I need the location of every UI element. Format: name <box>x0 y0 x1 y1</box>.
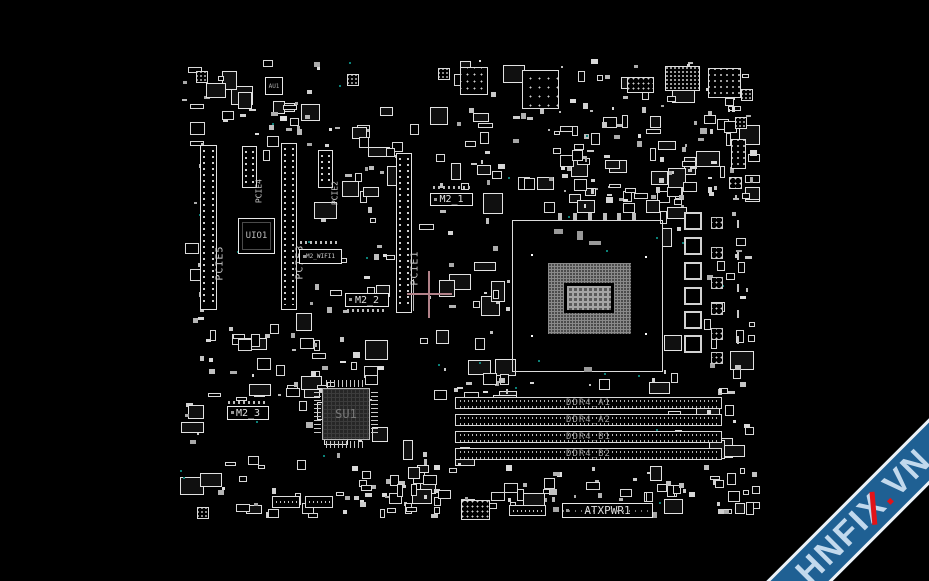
pad-array-component[interactable] <box>460 67 488 95</box>
component-outline <box>622 115 628 128</box>
crystal-component[interactable] <box>196 71 208 83</box>
slot-pcie3[interactable]: PCIE3 <box>281 143 297 310</box>
component-outline <box>612 107 614 110</box>
component-outline <box>724 510 729 514</box>
component-outline <box>646 129 661 134</box>
component-outline <box>190 122 205 135</box>
pad-array-component[interactable] <box>729 177 742 189</box>
vrm-choke[interactable] <box>684 262 702 280</box>
cpu-corner-mark <box>645 256 647 258</box>
component-outline <box>434 465 440 470</box>
slot-pcie4[interactable]: PCIE4 <box>242 146 257 188</box>
component-outline <box>268 509 279 518</box>
component-outline <box>397 484 403 497</box>
cpu-edge-pin <box>588 213 592 220</box>
component-outline <box>498 164 505 169</box>
component-outline <box>471 163 477 165</box>
component-outline <box>208 393 221 397</box>
component-outline <box>251 334 260 347</box>
slot-pcie2-label: PCIE2 <box>330 181 339 205</box>
component-outline <box>487 180 490 185</box>
component-outline <box>583 103 588 109</box>
vrm-mosfet[interactable] <box>711 303 723 315</box>
component-outline <box>634 193 648 199</box>
component-outline <box>548 129 550 131</box>
via-highlight-dot <box>515 387 517 389</box>
component-outline <box>506 465 512 471</box>
component-outline <box>434 390 447 400</box>
component-outline <box>738 262 745 273</box>
component-outline <box>745 427 754 435</box>
component-outline <box>483 373 497 385</box>
component-outline <box>617 124 622 127</box>
component-outline <box>403 440 413 460</box>
component-outline <box>194 202 197 204</box>
component-outline <box>562 174 568 178</box>
component-outline <box>369 166 374 170</box>
component-outline <box>182 99 187 101</box>
component-outline <box>183 81 187 84</box>
component-outline <box>354 496 359 500</box>
component-outline <box>623 96 628 99</box>
chip-au1[interactable]: AU1 <box>265 77 283 95</box>
component-outline <box>619 498 623 501</box>
component-outline <box>188 405 204 419</box>
pad-array-component[interactable] <box>708 68 741 98</box>
component-outline <box>327 307 332 313</box>
component-outline <box>544 202 555 213</box>
vrm-mosfet[interactable] <box>711 352 723 364</box>
via-highlight-dot <box>438 364 440 366</box>
component-outline <box>365 167 368 171</box>
slot-ddr4-a2[interactable]: DDR4_A2 <box>455 414 722 426</box>
component-outline <box>223 120 228 122</box>
vrm-mosfet[interactable] <box>711 217 723 229</box>
pin-header[interactable] <box>305 496 333 508</box>
component-outline <box>683 489 686 493</box>
crystal-component[interactable] <box>347 74 359 86</box>
component-outline <box>688 169 692 172</box>
component-outline <box>209 369 215 374</box>
via-highlight-dot <box>323 455 325 457</box>
component-outline <box>664 499 683 514</box>
component-outline <box>683 182 697 192</box>
component-outline <box>752 486 760 494</box>
component-outline <box>719 388 721 393</box>
component-outline <box>506 307 510 311</box>
component-outline <box>431 514 438 518</box>
component-outline <box>744 424 750 428</box>
component-outline <box>238 339 252 351</box>
cpu-socket[interactable] <box>512 220 663 372</box>
component-outline <box>726 273 735 280</box>
component-outline <box>561 167 565 170</box>
component-outline <box>646 492 653 502</box>
component-outline <box>483 193 503 214</box>
component-outline <box>660 157 664 162</box>
component-outline <box>419 224 434 230</box>
component-outline <box>486 218 489 224</box>
component-outline <box>527 117 533 120</box>
component-outline <box>361 485 372 491</box>
cpu-corner-mark <box>531 335 533 337</box>
component-outline <box>301 104 320 121</box>
component-outline <box>493 246 498 251</box>
cpu-inner-part <box>554 229 563 234</box>
slot-ddr4-a2-label: DDR4_A2 <box>566 415 611 425</box>
component-outline <box>507 280 510 283</box>
component-outline <box>549 177 553 181</box>
cpu-corner-mark <box>531 254 533 256</box>
component-outline <box>364 276 370 279</box>
component-outline <box>280 116 287 121</box>
component-outline <box>623 203 635 213</box>
component-outline <box>377 245 382 248</box>
component-outline <box>321 219 326 222</box>
component-outline <box>370 218 376 223</box>
vrm-choke[interactable] <box>684 335 702 353</box>
chip-uio1[interactable]: UIO1 <box>238 218 275 254</box>
component-outline <box>410 124 419 135</box>
component-outline <box>449 468 457 473</box>
component-outline <box>553 148 561 154</box>
component-outline <box>577 200 595 213</box>
component-outline <box>387 508 396 513</box>
component-outline <box>723 445 745 457</box>
component-outline <box>218 76 224 81</box>
chip-su1[interactable]: SU1 <box>322 388 370 440</box>
component-outline <box>465 141 476 147</box>
vrm-mosfet[interactable] <box>711 247 723 259</box>
component-outline <box>363 187 379 197</box>
component-outline <box>572 126 578 136</box>
su1-pins-right <box>371 392 378 436</box>
component-outline <box>718 509 724 514</box>
component-outline <box>584 204 586 208</box>
slot-pcie5[interactable]: PCIE5 <box>200 145 217 310</box>
component-outline <box>606 197 613 203</box>
connector-m2-2-label: M2_2 <box>355 295 379 306</box>
component-outline <box>240 114 246 117</box>
crystal-component[interactable] <box>741 89 753 101</box>
component-outline <box>607 194 612 196</box>
component-outline <box>230 371 237 374</box>
component-outline <box>383 254 387 257</box>
component-outline <box>492 171 502 179</box>
component-outline <box>252 374 254 377</box>
component-outline <box>181 422 204 433</box>
pad-row <box>433 186 471 189</box>
component-outline <box>294 382 298 387</box>
component-outline <box>730 351 754 370</box>
component-outline <box>193 318 198 323</box>
vrm-choke[interactable] <box>684 287 702 305</box>
pad-array-component[interactable] <box>627 77 654 93</box>
component-outline <box>587 150 594 152</box>
component-outline <box>360 502 366 507</box>
component-outline <box>297 129 302 135</box>
component-outline <box>620 489 632 497</box>
component-outline <box>559 111 561 113</box>
pad-array-component[interactable] <box>731 139 746 169</box>
component-outline <box>667 96 676 102</box>
boardview-canvas[interactable]: PCIE5 PCIE4 PCIE3 PCIE2 PCIE1 UIO1 AU1 S… <box>0 0 929 581</box>
component-outline <box>597 75 603 81</box>
component-outline <box>740 382 746 387</box>
component-outline <box>642 92 649 100</box>
component-outline <box>589 384 591 386</box>
component-outline <box>451 163 461 180</box>
component-outline <box>727 473 736 485</box>
connector-m2-3[interactable]: M2_3 <box>227 406 269 420</box>
component-outline <box>650 148 656 161</box>
pad-row <box>347 309 387 312</box>
component-outline <box>499 378 505 383</box>
component-outline <box>642 107 646 113</box>
component-outline <box>457 122 461 126</box>
component-outline <box>458 463 461 466</box>
component-outline <box>609 184 621 188</box>
component-outline <box>682 161 696 167</box>
via-highlight-dot <box>659 502 661 504</box>
component-outline <box>483 391 488 393</box>
component-outline <box>728 391 735 394</box>
component-outline <box>434 507 440 514</box>
component-outline <box>550 489 557 495</box>
component-outline <box>659 178 664 183</box>
via-highlight-dot <box>638 375 640 377</box>
component-outline <box>657 484 667 492</box>
slot-ddr4-b2[interactable]: DDR4_B2 <box>455 448 722 460</box>
vrm-choke[interactable] <box>684 212 702 230</box>
component-outline <box>249 109 256 111</box>
vrm-choke[interactable] <box>684 311 702 329</box>
component-outline <box>271 112 278 116</box>
component-outline <box>721 388 728 394</box>
component-outline <box>679 483 684 488</box>
component-outline <box>254 503 258 506</box>
via-highlight-dot <box>568 216 570 218</box>
component-outline <box>752 472 757 477</box>
component-outline <box>590 110 593 112</box>
slot-ddr4-a1[interactable]: DDR4_A1 <box>455 397 722 409</box>
component-outline <box>353 352 360 358</box>
component-outline <box>342 181 359 197</box>
slot-pcie2[interactable]: PCIE2 <box>318 150 333 188</box>
crystal-component[interactable] <box>197 507 209 519</box>
component-outline <box>380 107 393 116</box>
su1-pins-left <box>314 392 321 436</box>
component-outline <box>481 160 483 164</box>
component-outline <box>300 338 314 349</box>
connector-m2-1[interactable]: M2_1 <box>430 193 473 206</box>
component-outline <box>278 394 281 396</box>
component-outline <box>340 337 344 342</box>
component-outline <box>198 317 204 320</box>
slot-ddr4-a1-label: DDR4_A1 <box>566 398 611 408</box>
component-outline <box>674 199 682 205</box>
component-outline <box>708 187 712 193</box>
component-outline <box>637 141 642 147</box>
component-outline <box>740 468 745 474</box>
component-outline <box>493 290 499 299</box>
component-outline <box>725 405 734 416</box>
slot-pcie5-label: PCIE5 <box>214 245 225 280</box>
component-outline <box>530 382 534 384</box>
su1-pins-top <box>326 380 366 387</box>
component-outline <box>449 305 456 308</box>
component-outline <box>249 384 271 396</box>
component-outline <box>696 151 720 167</box>
component-outline <box>385 496 389 498</box>
component-outline <box>312 353 326 359</box>
vrm-mosfet[interactable] <box>711 277 723 289</box>
component-outline <box>720 166 725 178</box>
component-outline <box>185 243 199 254</box>
slot-pcie1-label: PCIE1 <box>410 251 421 286</box>
component-outline <box>736 238 746 246</box>
component-outline <box>263 60 273 67</box>
component-outline <box>340 361 346 363</box>
pad-mark <box>737 336 739 344</box>
via-highlight-dot <box>508 177 510 179</box>
via-highlight-dot <box>256 421 258 423</box>
component-outline <box>352 466 358 471</box>
component-outline <box>286 388 300 397</box>
component-outline <box>732 212 736 216</box>
component-outline <box>218 490 224 495</box>
slot-pcie1[interactable]: PCIE1 <box>396 153 412 313</box>
component-outline <box>210 330 216 341</box>
component-outline <box>714 186 717 190</box>
pin-header[interactable] <box>509 505 546 516</box>
component-outline <box>307 143 312 146</box>
component-outline <box>292 349 296 351</box>
component-outline <box>336 492 344 496</box>
pad-row <box>300 241 338 244</box>
component-outline <box>638 134 641 138</box>
via-highlight-dot <box>272 123 274 125</box>
component-outline <box>239 476 247 482</box>
component-outline <box>272 488 276 494</box>
component-outline <box>408 467 420 479</box>
component-outline <box>436 330 449 344</box>
component-outline <box>602 122 607 128</box>
component-outline <box>662 228 672 247</box>
component-outline <box>406 507 417 512</box>
component-outline <box>544 478 555 489</box>
component-outline <box>315 284 319 290</box>
component-outline <box>480 132 489 144</box>
component-outline <box>625 188 636 193</box>
component-outline <box>290 118 299 126</box>
component-outline <box>604 155 610 158</box>
component-outline <box>732 107 735 112</box>
component-outline <box>733 420 736 423</box>
component-outline <box>190 440 196 444</box>
component-outline <box>473 301 480 308</box>
connector-m2-wifi1[interactable]: M2_WIFI1 <box>299 249 342 264</box>
component-outline <box>479 60 481 62</box>
component-outline <box>365 493 372 497</box>
component-outline <box>200 473 222 487</box>
component-outline <box>669 171 672 175</box>
component-outline <box>564 190 566 192</box>
component-outline <box>423 475 437 485</box>
slot-ddr4-b1-label: DDR4_B1 <box>566 432 611 442</box>
component-outline <box>359 137 369 148</box>
pad-array-component[interactable] <box>665 66 700 91</box>
component-outline <box>745 256 752 259</box>
component-outline <box>329 128 332 131</box>
vrm-mosfet[interactable] <box>711 328 723 340</box>
crystal-component[interactable] <box>735 117 747 129</box>
component-outline <box>484 292 487 294</box>
connector-m2-2[interactable]: M2_2 <box>345 293 389 307</box>
component-outline <box>704 115 716 124</box>
cpu-edge-pin <box>573 213 577 220</box>
component-outline <box>222 111 234 120</box>
component-outline <box>380 171 384 174</box>
pad-array-component[interactable] <box>461 500 490 520</box>
component-outline <box>506 389 508 394</box>
component-outline <box>540 109 544 114</box>
component-outline <box>473 113 489 122</box>
component-outline <box>708 111 712 115</box>
component-outline <box>335 127 340 129</box>
component-outline <box>671 373 678 383</box>
component-outline <box>325 144 329 147</box>
component-outline <box>457 387 463 389</box>
pin-header[interactable] <box>272 496 300 508</box>
component-outline <box>229 327 233 331</box>
component-outline <box>717 261 725 271</box>
component-outline <box>430 107 448 125</box>
component-outline <box>436 154 445 162</box>
connector-atxpwr1[interactable]: ATXPWR1 <box>562 503 653 518</box>
component-outline <box>307 90 312 94</box>
component-outline <box>740 296 746 299</box>
component-outline <box>475 338 485 350</box>
component-outline <box>372 485 376 489</box>
component-outline <box>725 98 734 106</box>
vrm-choke[interactable] <box>684 237 702 255</box>
component-outline <box>524 178 535 190</box>
component-outline <box>742 193 750 199</box>
component-outline <box>649 382 670 394</box>
chip-au1-label: AU1 <box>269 83 280 90</box>
component-outline <box>685 144 687 147</box>
component-outline <box>386 255 395 260</box>
component-outline <box>746 502 754 515</box>
cpu-inner-part <box>577 231 583 240</box>
via-highlight-dot <box>339 85 341 87</box>
crystal-component[interactable] <box>438 68 450 80</box>
component-outline <box>345 496 350 500</box>
pad-array-component[interactable] <box>522 70 559 109</box>
slot-ddr4-b1[interactable]: DDR4_B1 <box>455 431 722 443</box>
component-outline <box>345 174 352 177</box>
component-outline <box>185 414 189 417</box>
component-outline <box>449 263 454 267</box>
component-outline <box>591 179 595 182</box>
component-outline <box>733 198 739 200</box>
component-outline <box>424 495 427 499</box>
cpu-edge-pin <box>617 213 621 220</box>
component-outline <box>592 467 595 471</box>
via-highlight-dot <box>180 470 182 472</box>
connector-m2-1-label: M2_1 <box>439 194 463 205</box>
